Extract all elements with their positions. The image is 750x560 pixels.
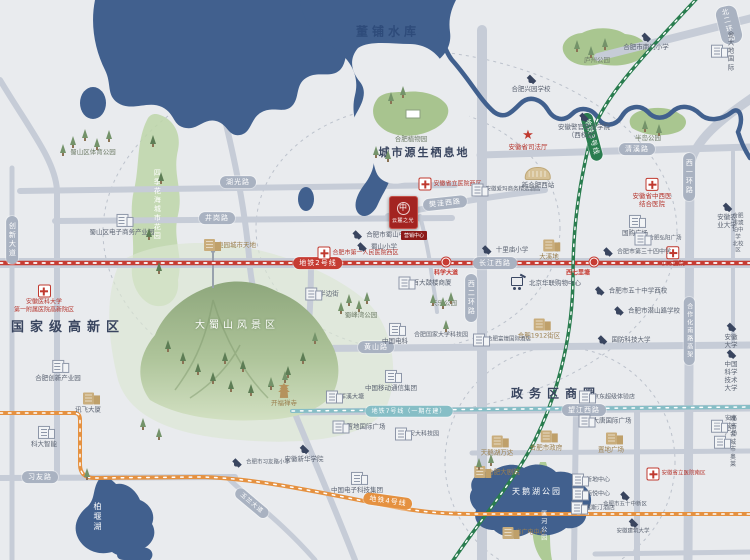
road-fanwaxi-label: 樊洼西路 [423,195,468,211]
grand-theater-label-text: 合肥大剧院 [487,468,520,476]
hospital-zhongxiyi-label-text: 安徽省中西医 结合医院 [633,192,672,208]
school-ustc-label: 中国科学技术大学 [722,350,741,393]
tree-icon [385,150,391,159]
shufengwan-park-label: 蜀峰湾公园 [345,311,378,319]
road-qingxi-label: 清溪路 [619,143,655,155]
school-anjian-label-text: 安徽建筑大学 [616,529,649,536]
westin-label-text: 威斯汀酒店 [585,504,615,512]
tree-icon [268,377,274,386]
zhidi-plaza-label-text: 置地广场 [598,445,624,453]
school-nanmen-label: 合肥市南门小学 [623,33,669,51]
sports-park-label-text: 蜀山区体育公园 [70,148,116,156]
road-wangjiangxi-label-text: 望江西路 [568,406,600,415]
datang-plaza-label: 大唐国际广场 [579,415,632,428]
hongyang-plaza-label: 合肥弘阳广场 [634,233,681,246]
iflytek-icon [83,392,94,404]
road-hezuohua-label-text: 合作化南路高架 [685,303,693,359]
school-police-college-label-text: 安徽警官职业学院 （西校区） [558,123,610,139]
school-xinhua-icon [297,445,311,454]
road-changjiangxi-label-text: 长江西路 [479,259,511,268]
tree-icon [106,130,112,139]
hitech-zone-label-text: 国家级高新区 [11,320,125,336]
zhidi-plaza-label: 置地广场 [598,432,624,453]
tree-icon [240,360,246,369]
school-no34-label: 合肥市第三十四中学 [601,248,671,257]
justice-dept-label: ★安徽省司法厅 [509,129,548,151]
city-gov-label-text: 合肥市政府 [530,443,563,451]
luzhou-park-label-text: 庐州公园 [584,56,610,64]
iflytek-label: 讯飞大厦 [75,392,101,413]
boyue-center-label-text: 栢悦中心 [586,490,610,498]
school-police-college-icon [577,113,591,122]
zhidi-plaza-icon [606,432,617,444]
datang-plaza-icon [579,415,591,428]
city-gov-label: 合肥市政府 [530,430,563,451]
school-anjian-label: 安徽建筑大学 [616,519,649,536]
school-xingyuan-icon [524,75,538,84]
school-shushan-middle-icon [350,231,364,240]
tree-icon [210,372,216,381]
tree-icon [150,135,156,144]
vip-outlet-icon [714,436,726,449]
school-shilimiao-label: 十里庙小学 [480,246,529,255]
hunxi-pond-icon [326,391,338,404]
cetc-group-icon [351,472,363,485]
tree-icon [146,228,152,237]
school-anhui-univ-icon [724,323,738,332]
hotel-aima-icon [471,184,483,197]
tree-icon [60,144,66,153]
tree-icon [156,428,162,437]
daxidi-label: 大溪地 [539,239,559,260]
wanda-icon [492,435,503,447]
anda-sci-park-label: 安大科技园 [395,428,439,441]
china-mobile-label: 中国移动通信集团 [365,370,417,392]
broadcast-center-icon [502,527,513,539]
guogou-plaza-icon [629,215,641,228]
road-xiyihuan-label: 西一环路 [683,153,695,201]
road-huguang-label-text: 湖光路 [226,178,250,187]
hospital-anyida-label-text: 安徽医科大学 第一附属医院高新院区 [14,299,74,314]
xindi-center-icon [572,474,584,487]
location-map[interactable]: 董铺水库城市源生栖息地国家级高新区政务区商圈大蜀山风景区天鹅湖公园柏堰湖匡河公园… [0,0,750,560]
school-xiyoulu-icon [230,459,244,468]
dongpu-reservoir-label-text: 董铺水库 [356,25,420,40]
tree-icon [94,138,100,147]
station-dot-xiqilitang-icon [590,258,599,267]
road-fanwaxi-label-text: 樊洼西路 [429,197,462,209]
univ-sci-park-label: 合肥国家大学科技园 [414,331,468,339]
ecommerce-park-label: 蜀山区电子商务产业园 [90,214,155,236]
datang-plaza-label-text: 大唐国际广场 [593,417,632,425]
tree-icon [488,454,494,463]
fuhuang-hotel-label: 合肥富煌国际酒店 [473,334,531,347]
road-xierhuan-label-text: 西二环路 [467,280,476,316]
innovation-park-label: 合肥创新产业园 [35,360,81,382]
shufengwan-park-label-text: 蜀峰湾公园 [345,311,378,319]
ecommerce-park-label-text: 蜀山区电子商务产业园 [90,228,155,236]
tree-icon [165,340,171,349]
westin-icon [571,502,583,515]
cetc-label-text: 中国电科 [382,337,408,345]
grand-theater-icon [474,466,485,478]
tree-icon [356,300,362,309]
station-xiqilitang-label-text: 西七里塘 [566,269,590,277]
tree-icon [312,332,318,341]
xindi-center-label: 新地中心 [572,474,610,487]
school-no50-new-icon [618,492,632,501]
school-shushan-primary-icon [355,243,369,252]
station-xiqilitang-label: 西七里塘 [566,269,590,277]
habitat-label: 城市源生栖息地 [379,146,470,160]
metro-line2-badge-text: 地铁2号线 [299,259,336,268]
tree-icon [228,380,234,389]
anda-sci-park-icon [395,428,407,441]
hongyang-plaza-label-text: 合肥弘阳广场 [648,236,681,243]
hospital-zhongxiyi-icon [646,178,659,191]
sports-park-label: 蜀山区体育公园 [70,148,116,156]
road-qingxi-label-text: 清溪路 [625,145,649,154]
school-shilimiao-label-text: 十里庙小学 [496,246,529,254]
swan-lake-label-text: 天鹅湖公园 [512,487,562,497]
jindadi-label: 金大地国际 [711,31,737,72]
hospital-anyida-label: 安徽医科大学 第一附属医院高新院区 [14,285,74,314]
hospital-shengli-west-icon [418,178,431,191]
westin-label: 威斯汀酒店 [571,502,615,515]
tree-icon [443,320,449,329]
school-guofang-label: 国防科技大学 [596,336,651,345]
school-police-college-label: 安徽警官职业学院 （西校区） [558,113,610,139]
justice-dept-label-text: 安徽省司法厅 [509,143,548,151]
road-jinggang-label: 井岗路 [199,212,235,224]
china-mobile-label-text: 中国移动通信集团 [365,384,417,392]
tree-icon [400,86,406,95]
jd-store-icon [579,391,591,404]
jindadi-icon [711,45,723,58]
tree-icon [82,129,88,138]
baida-gulou-icon [399,277,411,290]
wanda-label: 天鹅湖万达 [481,435,514,456]
school-anhui-univ-label: 安徽大学 [722,323,741,349]
city-gov-icon [541,430,552,442]
hotel-aima-label: 安徽爱玛商务精选酒店 [471,184,540,197]
school-no50-west-label-text: 合肥市五十中学西校 [609,287,668,295]
road-hezuohua-label: 合作化南路高架 [684,297,695,365]
keda-intelligent-label-text: 科大智能 [31,440,57,448]
zhidi-intl-plaza-label-text: 置地国际广场 [347,423,386,431]
dashushan-label-text: 大蜀山风景区 [195,320,279,333]
school-shushan-primary-label: 蜀山小学 [355,243,397,252]
school-qianshanlu-icon [612,307,626,316]
vip-outlet-label: 唯品会城市奥莱 [714,416,738,469]
tree-icon [588,46,594,55]
school-hupo-label-text: 合肥市琥珀中学 北校区 [732,213,744,254]
road-changjiangxi-label: 长江西路 [473,257,517,269]
kaifu-temple-label: 开福禅寺 [271,383,297,407]
dashushan-label: 大蜀山风景区 [195,320,279,333]
baiyan-lake-label: 柏堰湖 [92,502,102,532]
keda-intelligent-icon [38,426,50,439]
school-shilimiao-icon [480,246,494,255]
cetc-group-label-text: 中国电子科技集团 [331,486,383,494]
school-ustc-label-text: 中国科学技术大学 [722,360,741,393]
road-chuangxin-label: 创新大道 [6,216,18,264]
cetc-icon [389,323,401,336]
hualian-mall-label: 北京华联购物中心 [511,277,581,289]
road-xiyou-label: 习友路 [22,471,58,483]
tree-icon [388,92,394,101]
jd-store-label: 京东超级体验店 [579,391,635,404]
tree-icon [195,363,201,372]
kaifu-temple-label-text: 开福禅寺 [271,399,297,407]
china-mobile-icon [385,370,397,383]
botanical-garden-label-text: 合肥植物园 [395,135,428,143]
innovation-park-icon [52,360,64,373]
wanda-label-text: 天鹅湖万达 [481,448,514,456]
hefei-west-station-icon [525,167,551,180]
station-dot-xiqilitang [590,258,599,267]
road-yulan-label: 玉兰大道 [233,486,270,520]
station-dot-kexuedadao [442,258,451,267]
hospital-zhongxiyi-label: 安徽省中西医 结合医院 [633,178,672,208]
tree-icon [222,352,228,361]
project-sales-tag: 营销中心 [401,231,427,240]
cetc-label: 中国电科 [382,323,408,345]
metro-line4-badge: 地铁4号线 [363,492,414,511]
tree-icon [84,468,90,477]
ecommerce-park-icon [116,214,128,227]
baida-gulou-label-text: 百大鼓楼商厦 [413,279,452,287]
school-xingyuan-label-text: 合肥兴园学校 [512,85,551,93]
keda-intelligent-label: 科大智能 [31,426,57,448]
school-shushan-primary-label-text: 蜀山小学 [371,243,397,251]
jd-store-label-text: 京东超级体验店 [593,393,635,401]
school-hupo-label: 合肥市琥珀中学 北校区 [732,213,744,254]
aoyuan-label: 奥园城市天地 [204,239,256,251]
hunxi-pond-label: 浑溪大塘 [326,391,364,404]
dongpu-reservoir-label: 董铺水库 [356,25,420,40]
school-xinhua-label: 安徽新华学院 [285,445,324,463]
tree-icon [602,38,608,47]
school-xiyoulu-label: 合肥市习友路小学 [230,459,290,468]
aoyuan-label-text: 奥园城市天地 [217,241,256,249]
tree-icon [574,40,580,49]
cetc-group-label: 中国电子科技集团 [331,472,383,494]
aoyuan-icon [204,239,215,251]
hospital-105-label-text: 105医院 [661,260,684,268]
tree-icon [140,418,146,427]
tree-icon [338,302,344,311]
road-xierhuan-label: 西二环路 [465,274,477,322]
hefei1912-icon [533,318,544,330]
banbianjie-icon [305,288,317,301]
zhidi-intl-plaza-label: 置地国际广场 [333,421,386,434]
anda-sci-park-label-text: 安大科技园 [409,430,439,438]
school-annong-icon [720,203,734,212]
school-guofang-icon [596,336,610,345]
tree-icon [180,352,186,361]
tree-icon [248,384,254,393]
tree-icon [70,136,76,145]
tree-icon [346,294,352,303]
metro-line7-badge: 地铁7号线（一期在建） [366,406,453,417]
kaifu-temple-icon [278,383,291,398]
daxidi-icon [544,239,555,251]
tree-icon [282,371,288,380]
school-no34-icon [601,248,615,257]
road-xiyihuan-label-text: 西一环路 [685,159,694,195]
school-qianshanlu-label: 合肥市潜山路学校 [612,307,680,316]
project-logo-title: 云麓之光 [392,217,414,224]
tree-icon [373,146,379,155]
project-logo-mark: 中 [396,202,409,215]
metro-line7-badge-text: 地铁7号线（一期在建） [372,407,447,415]
hualian-mall-label-text: 北京华联购物中心 [529,279,581,287]
school-no34-label-text: 合肥市第三十四中学 [617,248,671,256]
hospital-first-people-icon [317,247,330,260]
tree-icon [430,294,436,303]
luzhou-park-label: 庐州公园 [584,56,610,64]
tree-icon [158,172,164,181]
school-no50-west-label: 合肥市五十中学西校 [593,287,668,296]
baida-gulou-label: 百大鼓楼商厦 [399,277,452,290]
tree-icon [476,458,482,467]
xindi-center-label-text: 新地中心 [586,476,610,484]
univ-sci-park-label-text: 合肥国家大学科技园 [414,331,468,339]
tree-icon [440,297,446,306]
tree-icon [300,352,306,361]
map-labels-layer: 董铺水库城市源生栖息地国家级高新区政务区商圈大蜀山风景区天鹅湖公园柏堰湖匡河公园… [0,0,750,560]
hospital-shengli-south-icon [646,468,659,481]
boyue-center-label: 栢悦中心 [572,488,610,501]
daxidi-label-text: 大溪地 [539,252,559,260]
road-xiyou-label-text: 习友路 [28,473,52,482]
iflytek-label-text: 讯飞大厦 [75,405,101,413]
road-jinggang-label-text: 井岗路 [205,214,229,223]
hospital-shengli-south-label-text: 安徽省立医院南区 [661,471,705,478]
school-xingyuan-label: 合肥兴园学校 [512,75,551,93]
project-marker: 中 云麓之光 营销中心 [379,196,427,240]
road-huguang-label: 湖光路 [220,176,256,188]
school-guofang-label-text: 国防科技大学 [612,336,651,344]
school-xiyoulu-label-text: 合肥市习友路小学 [246,460,290,467]
school-nanmen-label-text: 合肥市南门小学 [623,43,669,51]
broadcast-center-label-text: 省广电中心 [515,529,545,537]
hotel-aima-label-text: 安徽爱玛商务精选酒店 [485,187,540,194]
road-chuangxin-label-text: 创新大道 [8,222,17,258]
baiyan-lake-label-text: 柏堰湖 [92,502,102,532]
hongyang-plaza-icon [634,233,646,246]
innovation-park-label-text: 合肥创新产业园 [35,374,81,382]
metro-line4-badge-text: 地铁4号线 [369,494,407,508]
hospital-anyida-icon [37,285,50,298]
fuhuang-hotel-label-text: 合肥富煌国际酒店 [487,337,531,344]
tree-icon [364,292,370,301]
school-ustc-icon [724,350,738,359]
hitech-zone-label: 国家级高新区 [11,320,125,336]
fuhuang-hotel-icon [473,334,485,347]
school-anjian-icon [626,519,640,528]
school-nanmen-icon [639,33,653,42]
school-xinhua-label-text: 安徽新华学院 [285,455,324,463]
road-yulan-label-text: 玉兰大道 [239,491,265,515]
swan-lake-label: 天鹅湖公园 [512,487,562,497]
grand-theater-label: 合肥大剧院 [474,466,520,478]
hualian-mall-icon [511,277,523,286]
station-dot-kexuedadao-icon [442,258,451,267]
justice-dept-icon: ★ [522,129,534,142]
banbianjie-label: 半边街 [305,288,339,301]
school-no50-west-icon [593,287,607,296]
school-anhui-univ-label-text: 安徽大学 [722,333,741,349]
project-logo: 中 云麓之光 [388,196,417,229]
habitat-label-text: 城市源生栖息地 [379,146,470,160]
tree-icon [656,124,662,133]
tree-icon [448,292,454,301]
boyue-center-icon [572,488,584,501]
hospital-shengli-south-label: 安徽省立医院南区 [646,468,705,481]
tree-icon [156,262,162,271]
school-qianshanlu-label-text: 合肥市潜山路学校 [628,307,680,315]
broadcast-center-label: 省广电中心 [502,527,545,539]
hunxi-pond-label-text: 浑溪大塘 [340,393,364,401]
botanical-garden-label: 合肥植物园 [395,135,428,143]
zhidi-intl-plaza-icon [333,421,345,434]
tree-icon [642,120,648,129]
